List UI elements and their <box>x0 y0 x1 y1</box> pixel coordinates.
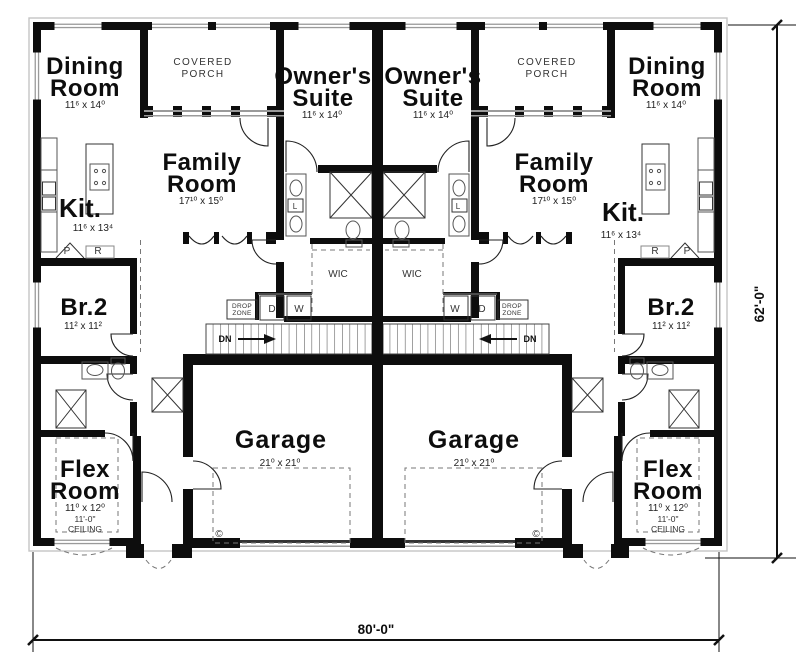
garage-right-label: Garage <box>428 426 520 454</box>
floor-plan-page: Dining Room 11⁶ x 14⁰ COVERED PORCH Owne… <box>0 0 809 664</box>
kitchen-left-dims: 11⁶ x 13⁴ <box>73 223 113 234</box>
stairs-down-left-label: DN <box>219 334 232 344</box>
owners-suite-left-dims: 11⁶ x 14⁰ <box>302 110 342 121</box>
owners-suite-left-label2: Suite <box>292 85 353 112</box>
drop-zone-left-label: DROP <box>232 303 252 310</box>
dining-room-right-label2: Room <box>632 75 702 102</box>
family-room-left-label2: Room <box>167 171 237 198</box>
wic-right-label: WIC <box>402 269 421 280</box>
linen-left-label: L <box>293 202 298 211</box>
bedroom2-left-dims: 11² x 11² <box>64 321 103 332</box>
pantry-right-label: P <box>684 246 691 257</box>
flex-room-right-ceiling2: CEILING <box>651 524 685 534</box>
fridge-left-label: R <box>94 246 101 257</box>
dining-room-right-dims: 11⁶ x 14⁰ <box>646 100 686 111</box>
kitchen-right-label: Kit. <box>602 197 644 227</box>
covered-porch-left-label2: PORCH <box>181 69 224 80</box>
flex-room-left-label2: Room <box>50 478 120 505</box>
washer-right-label: W <box>450 304 460 315</box>
family-room-right-label2: Room <box>519 171 589 198</box>
dining-room-left-label2: Room <box>50 75 120 102</box>
bedroom2-right-dims: 11² x 11² <box>652 321 691 332</box>
pantry-left-label: P <box>64 246 71 257</box>
dryer-left-label: D <box>268 304 275 315</box>
flex-room-right-ceiling: 11'-0" <box>657 514 678 524</box>
overall-width-dimension: 80'-0" <box>358 622 395 637</box>
garage-left-dims: 21⁰ x 21⁰ <box>260 458 301 469</box>
floor-plan-canvas: Dining Room 11⁶ x 14⁰ COVERED PORCH Owne… <box>0 0 809 664</box>
party-wall <box>372 22 383 548</box>
owners-suite-right-dims: 11⁶ x 14⁰ <box>413 110 453 121</box>
covered-porch-right-label: COVERED <box>517 57 576 68</box>
kitchen-right-dims: 11⁶ x 13⁴ <box>601 230 641 241</box>
dining-room-left-dims: 11⁶ x 14⁰ <box>65 100 105 111</box>
overall-depth-dimension: 62'-0" <box>752 286 767 323</box>
drop-zone-right-label: DROP <box>502 303 522 310</box>
bedroom2-left-label: Br.2 <box>60 294 107 321</box>
flex-room-left-ceiling2: CEILING <box>68 524 102 534</box>
copyright-left-mark: © <box>215 529 223 540</box>
washer-left-label: W <box>294 304 304 315</box>
stairs-down-right-label: DN <box>524 334 537 344</box>
family-room-left-dims: 17¹⁰ x 15⁰ <box>179 196 223 207</box>
covered-porch-right-label2: PORCH <box>525 69 568 80</box>
family-room-right-dims: 17¹⁰ x 15⁰ <box>532 196 576 207</box>
fridge-right-label: R <box>651 246 658 257</box>
linen-right-label: L <box>456 202 461 211</box>
flex-room-left-ceiling: 11'-0" <box>74 514 95 524</box>
drop-zone-right-label2: ZONE <box>502 310 522 317</box>
copyright-right-mark: © <box>532 529 540 540</box>
kitchen-left-label: Kit. <box>59 193 101 223</box>
dryer-right-label: D <box>478 304 485 315</box>
garage-right-dims: 21⁰ x 21⁰ <box>454 458 495 469</box>
garage-left-label: Garage <box>235 426 327 454</box>
flex-room-right-label2: Room <box>633 478 703 505</box>
flex-room-right-dims: 11⁰ x 12⁰ <box>648 503 688 514</box>
flex-room-left-dims: 11⁰ x 12⁰ <box>65 503 105 514</box>
wic-left-label: WIC <box>328 269 347 280</box>
covered-porch-left-label: COVERED <box>173 57 232 68</box>
owners-suite-right-label2: Suite <box>402 85 463 112</box>
drop-zone-left-label2: ZONE <box>232 310 252 317</box>
bedroom2-right-label: Br.2 <box>647 294 694 321</box>
